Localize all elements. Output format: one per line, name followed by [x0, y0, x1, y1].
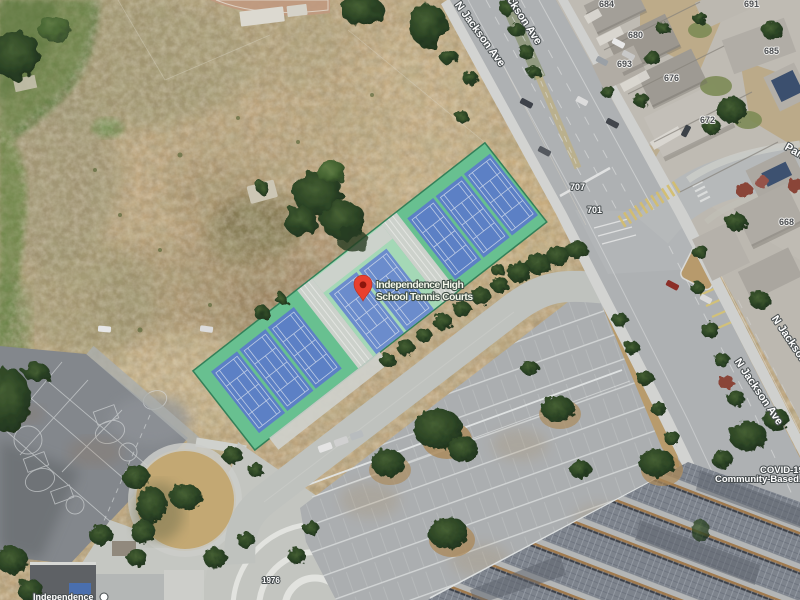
svg-text:701: 701: [587, 205, 602, 215]
svg-text:1976: 1976: [262, 576, 280, 585]
svg-text:693: 693: [617, 59, 632, 69]
svg-text:691: 691: [744, 0, 759, 9]
svg-text:672: 672: [700, 115, 715, 125]
svg-text:Community-Based...: Community-Based...: [715, 474, 800, 485]
svg-text:School Tennis Courts: School Tennis Courts: [376, 292, 473, 303]
svg-text:676: 676: [664, 73, 679, 83]
svg-text:Independence High: Independence High: [376, 280, 463, 291]
svg-text:668: 668: [779, 217, 794, 227]
svg-text:707: 707: [570, 182, 585, 192]
svg-text:685: 685: [764, 46, 779, 56]
svg-text:680: 680: [628, 30, 643, 40]
svg-text:Independence: Independence: [33, 592, 94, 600]
svg-text:684: 684: [599, 0, 614, 9]
